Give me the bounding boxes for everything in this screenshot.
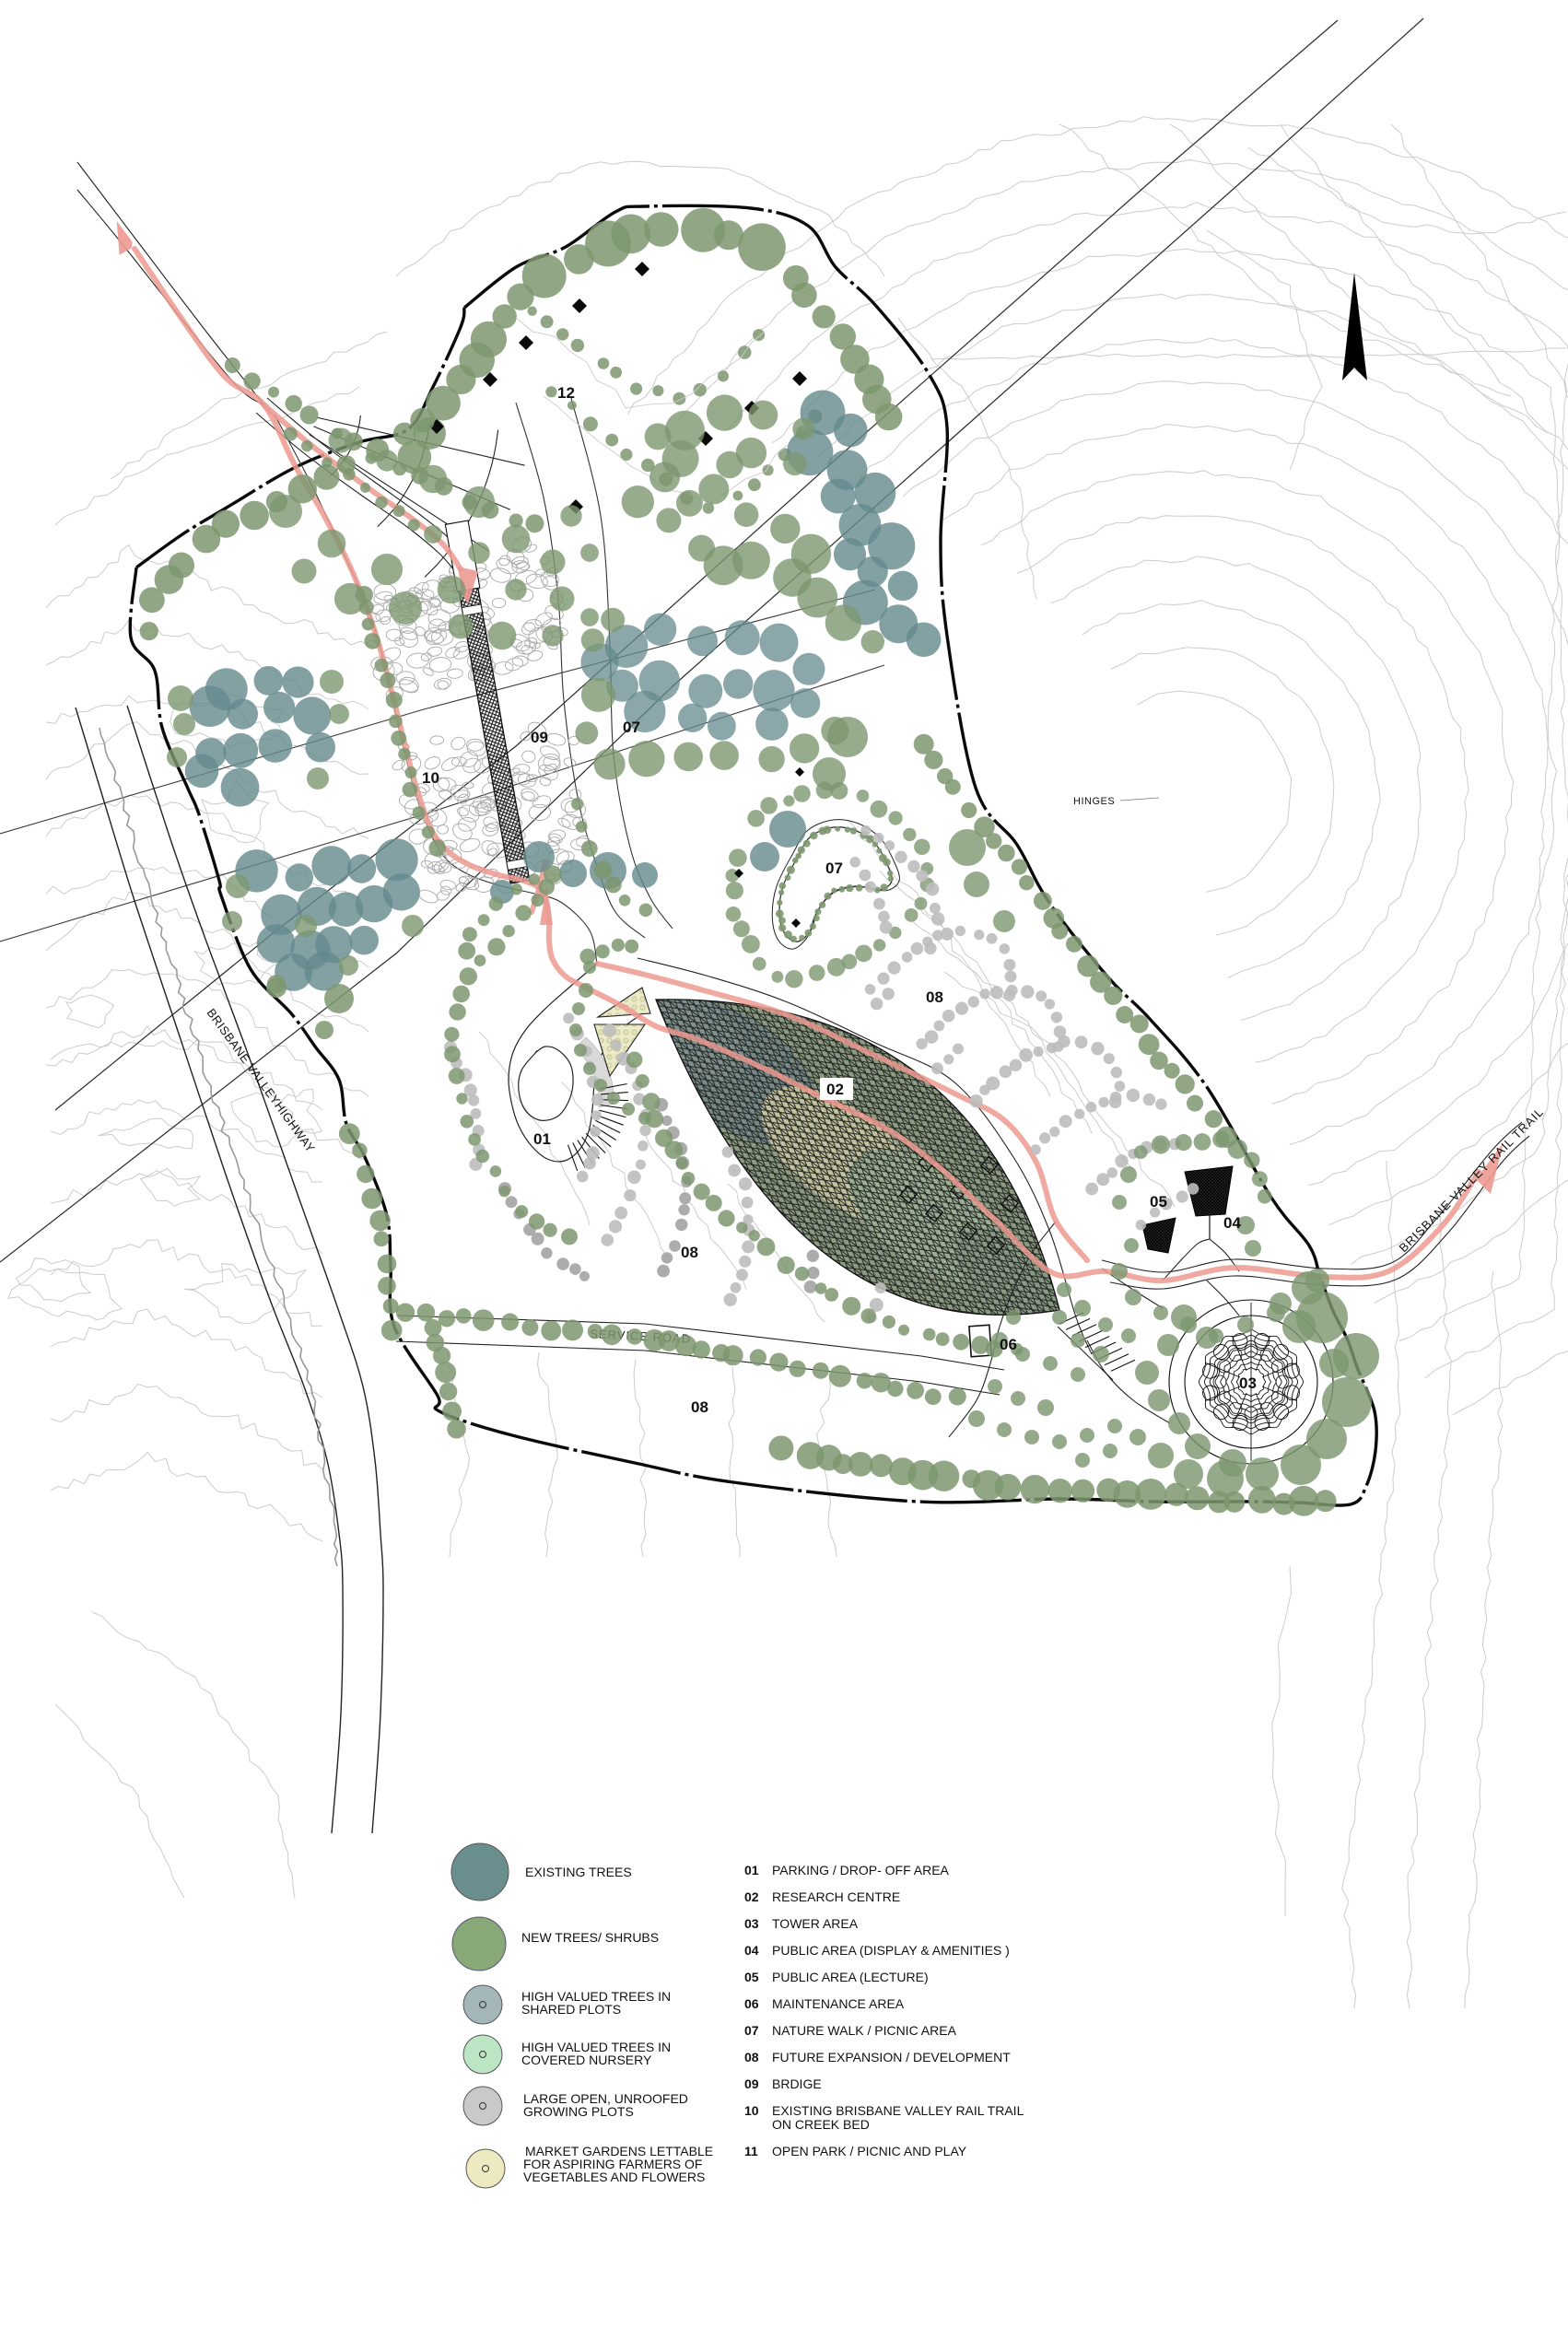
svg-text:HINGES: HINGES	[1073, 796, 1115, 807]
svg-text:03: 03	[744, 1916, 759, 1931]
svg-text:01: 01	[533, 1130, 551, 1148]
svg-text:01: 01	[744, 1863, 759, 1877]
svg-text:MAINTENANCE AREA: MAINTENANCE AREA	[772, 1996, 905, 2011]
svg-text:02: 02	[826, 1081, 844, 1098]
svg-text:06: 06	[1000, 1336, 1017, 1353]
svg-text:11: 11	[744, 2144, 758, 2158]
svg-text:09: 09	[744, 2076, 759, 2091]
svg-text:07: 07	[744, 2023, 759, 2038]
svg-text:EXISTING BRISBANE VALLEY RAIL: EXISTING BRISBANE VALLEY RAIL TRAIL	[772, 2103, 1024, 2118]
svg-text:05: 05	[1150, 1193, 1167, 1211]
svg-text:08: 08	[744, 2050, 759, 2064]
svg-text:RESEARCH CENTRE: RESEARCH CENTRE	[772, 1889, 900, 1904]
svg-text:PARKING / DROP- OFF AREA: PARKING / DROP- OFF AREA	[772, 1863, 950, 1877]
svg-text:07: 07	[623, 719, 640, 736]
svg-text:07: 07	[825, 860, 843, 877]
svg-text:06: 06	[744, 1996, 759, 2011]
svg-text:BRDIGE: BRDIGE	[772, 2076, 822, 2091]
svg-text:COVERED NURSERY: COVERED NURSERY	[521, 2053, 652, 2067]
svg-text:NATURE WALK / PICNIC AREA: NATURE WALK / PICNIC AREA	[772, 2023, 957, 2038]
svg-text:09: 09	[531, 729, 548, 746]
svg-text:05: 05	[744, 1970, 759, 1984]
svg-text:03: 03	[1239, 1374, 1257, 1392]
svg-text:OPEN PARK / PICNIC AND PLAY: OPEN PARK / PICNIC AND PLAY	[772, 2144, 967, 2158]
svg-text:10: 10	[744, 2103, 759, 2118]
svg-text:SHARED PLOTS: SHARED PLOTS	[521, 2002, 621, 2017]
svg-text:GROWING PLOTS: GROWING PLOTS	[523, 2104, 634, 2119]
svg-text:04: 04	[1223, 1214, 1241, 1232]
svg-text:VEGETABLES AND FLOWERS: VEGETABLES AND FLOWERS	[523, 2170, 705, 2184]
svg-text:02: 02	[744, 1889, 759, 1904]
svg-text:08: 08	[691, 1398, 708, 1416]
svg-text:08: 08	[926, 988, 943, 1006]
svg-text:10: 10	[422, 769, 439, 787]
svg-text:TOWER AREA: TOWER AREA	[772, 1916, 859, 1931]
svg-text:ON CREEK BED: ON CREEK BED	[772, 2117, 870, 2132]
svg-text:08: 08	[681, 1244, 698, 1261]
svg-text:EXISTING TREES: EXISTING TREES	[525, 1865, 632, 1879]
svg-text:12: 12	[557, 384, 575, 402]
svg-text:PUBLIC AREA (DISPLAY & AMENITI: PUBLIC AREA (DISPLAY & AMENITIES )	[772, 1943, 1010, 1958]
svg-text:PUBLIC AREA (LECTURE): PUBLIC AREA (LECTURE)	[772, 1970, 929, 1984]
svg-text:04: 04	[744, 1943, 759, 1958]
svg-text:FUTURE EXPANSION / DEVELOPMENT: FUTURE EXPANSION / DEVELOPMENT	[772, 2050, 1011, 2064]
svg-text:NEW TREES/ SHRUBS: NEW TREES/ SHRUBS	[521, 1930, 659, 1945]
